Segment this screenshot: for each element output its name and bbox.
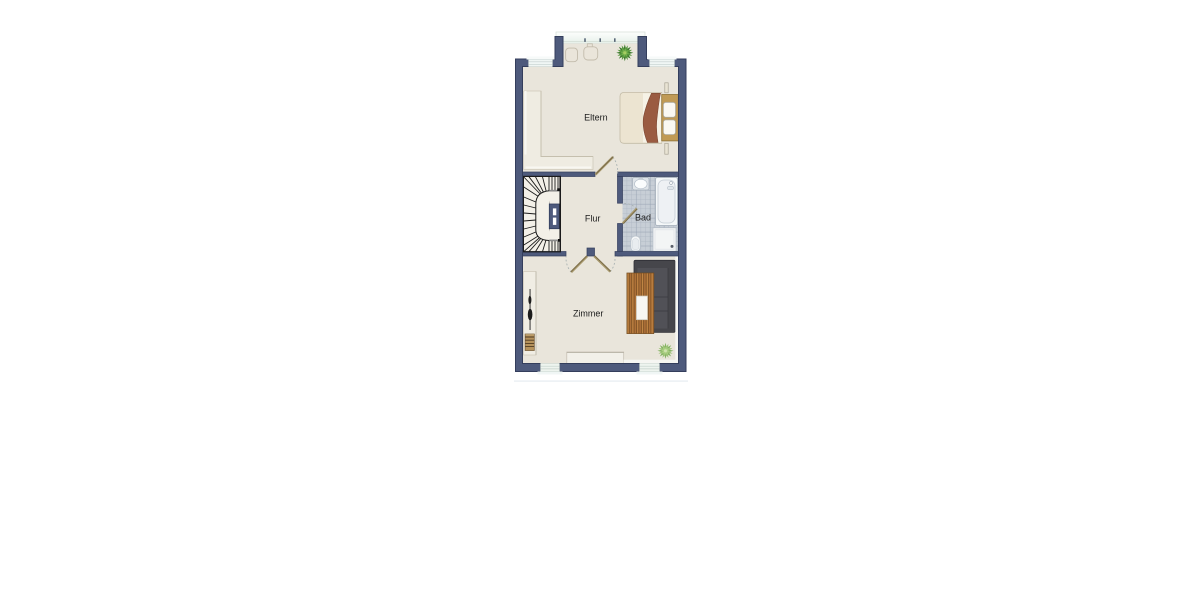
svg-text:Zimmer: Zimmer <box>573 308 604 318</box>
svg-text:Flur: Flur <box>585 214 601 224</box>
svg-text:Bad: Bad <box>635 212 651 222</box>
svg-text:Eltern: Eltern <box>584 113 608 123</box>
